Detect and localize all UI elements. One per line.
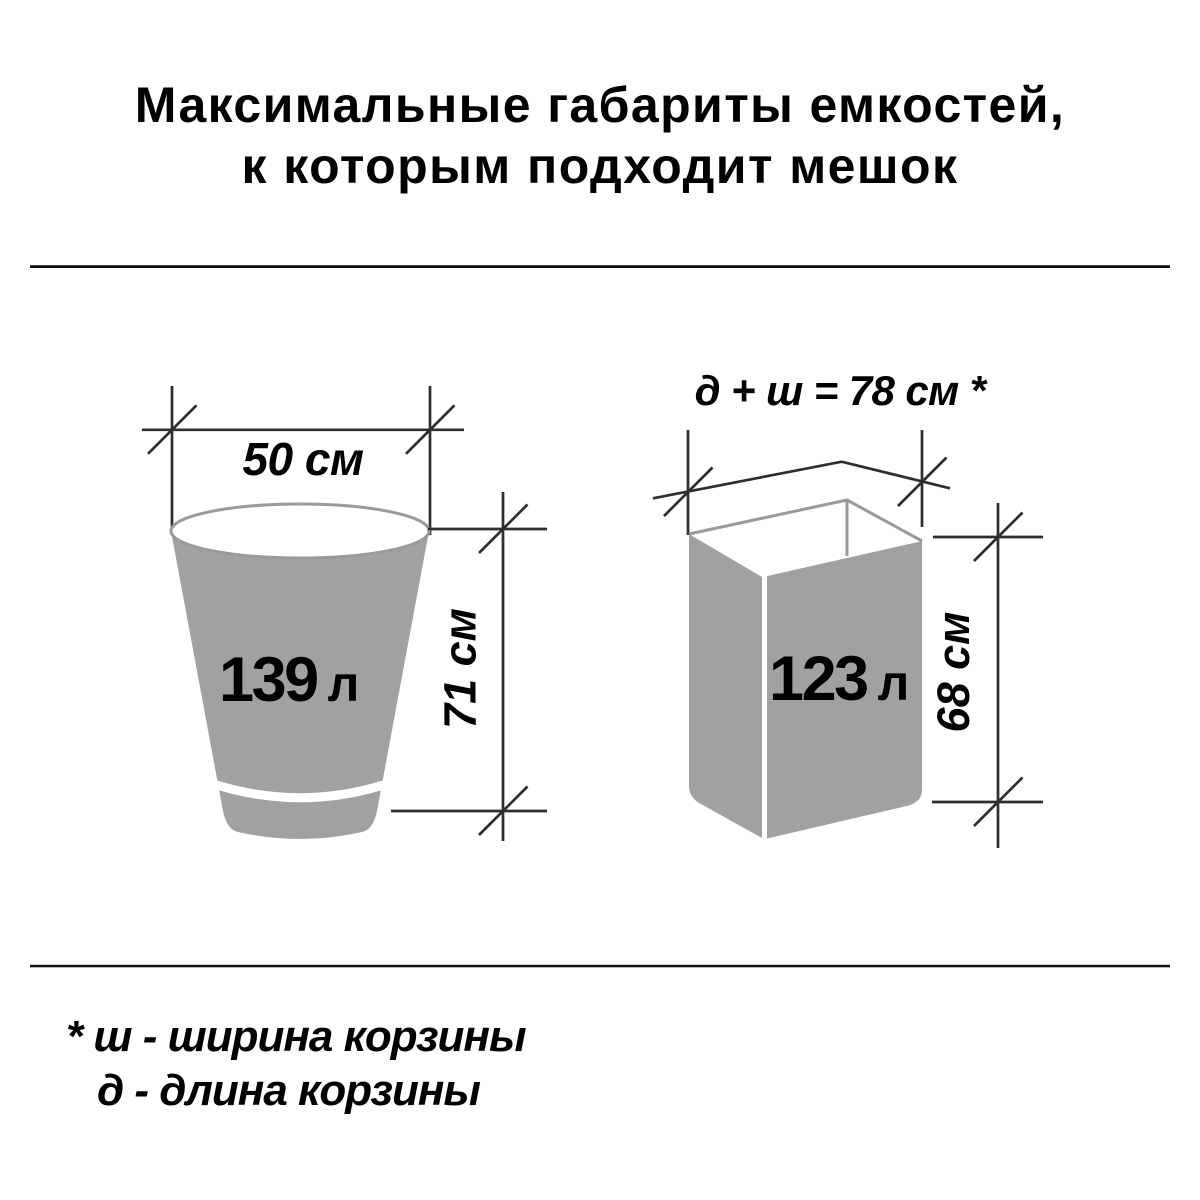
svg-text:68 см: 68 см: [928, 612, 979, 733]
svg-text:139 л: 139 л: [219, 645, 357, 715]
svg-text:* ш - ширина корзины: * ш - ширина корзины: [66, 1012, 526, 1061]
svg-text:к которым подходит мешок: к которым подходит мешок: [241, 138, 958, 194]
svg-text:71 см: 71 см: [435, 608, 486, 729]
svg-text:д - длина корзины: д - длина корзины: [97, 1066, 480, 1115]
svg-text:д + ш = 78 см *: д + ш = 78 см *: [695, 367, 988, 414]
svg-text:50 см: 50 см: [242, 433, 364, 485]
svg-text:Максимальные габариты емкостей: Максимальные габариты емкостей,: [135, 77, 1065, 133]
svg-text:123 л: 123 л: [769, 644, 907, 714]
